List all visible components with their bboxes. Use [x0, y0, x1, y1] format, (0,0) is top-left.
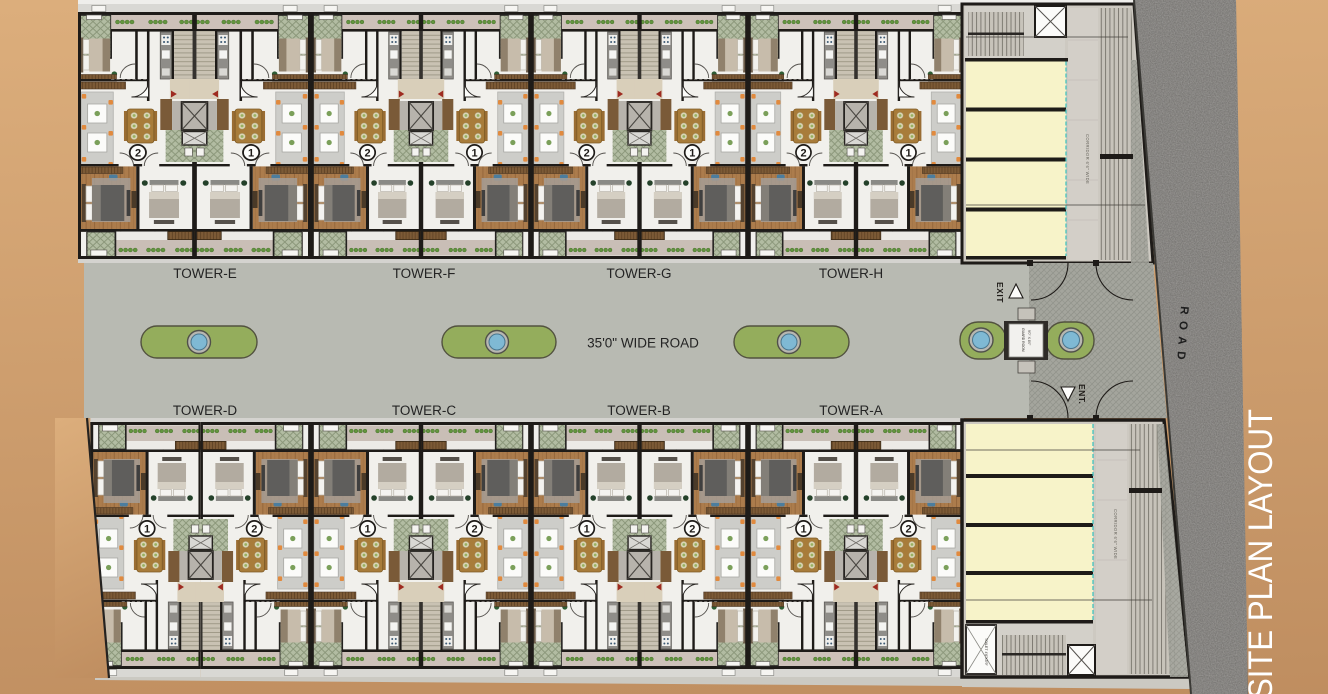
svg-text:CORRIDOR 6'6" WIDE: CORRIDOR 6'6" WIDE	[1113, 509, 1118, 559]
svg-text:TOWER-H: TOWER-H	[819, 266, 883, 281]
svg-text:TOWER-F: TOWER-F	[393, 266, 456, 281]
svg-text:TOWER-G: TOWER-G	[607, 266, 672, 281]
svg-text:TOWER-B: TOWER-B	[607, 403, 671, 418]
svg-text:1: 1	[471, 148, 477, 160]
svg-text:1: 1	[144, 523, 150, 535]
svg-text:1: 1	[364, 523, 370, 535]
svg-text:1: 1	[905, 148, 911, 160]
svg-text:TOWER-C: TOWER-C	[392, 403, 456, 418]
svg-text:9'0" X 8'0": 9'0" X 8'0"	[1027, 330, 1031, 346]
svg-text:35'0" WIDE ROAD: 35'0" WIDE ROAD	[587, 336, 699, 351]
svg-text:2: 2	[135, 148, 141, 160]
svg-text:SITE PLAN LAYOUT: SITE PLAN LAYOUT	[1242, 409, 1280, 694]
svg-text:1: 1	[248, 148, 254, 160]
svg-text:TOWER-A: TOWER-A	[819, 403, 883, 418]
svg-text:1: 1	[800, 523, 806, 535]
svg-text:2: 2	[584, 148, 590, 160]
svg-text:CORRIDOR 6'6" WIDE: CORRIDOR 6'6" WIDE	[1085, 134, 1090, 184]
svg-text:EXIT: EXIT	[995, 282, 1005, 303]
svg-text:1: 1	[584, 523, 590, 535]
svg-text:2: 2	[364, 148, 370, 160]
svg-text:TOILET 4'6"X5'9": TOILET 4'6"X5'9"	[984, 638, 988, 666]
svg-text:ENT.: ENT.	[1077, 384, 1087, 404]
svg-text:2: 2	[689, 523, 695, 535]
svg-text:TOWER-D: TOWER-D	[173, 403, 237, 418]
svg-text:2: 2	[800, 148, 806, 160]
svg-text:1: 1	[689, 148, 695, 160]
svg-text:2: 2	[251, 523, 257, 535]
svg-text:GUARD ROOM: GUARD ROOM	[1021, 328, 1025, 352]
svg-text:2: 2	[471, 523, 477, 535]
svg-text:TOWER-E: TOWER-E	[173, 266, 237, 281]
svg-text:2: 2	[905, 523, 911, 535]
